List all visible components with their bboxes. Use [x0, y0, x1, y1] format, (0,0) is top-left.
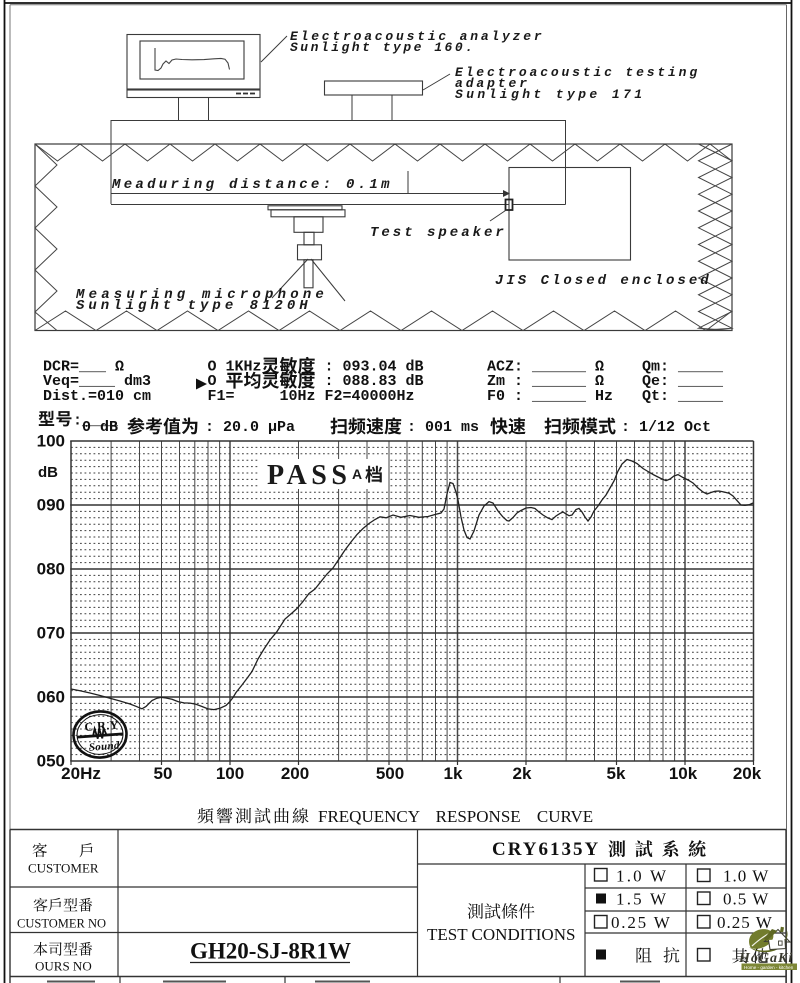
svg-text:FREQUENCY RESPONSE CURVE: FREQUENCY RESPONSE CURVE: [318, 807, 593, 826]
svg-text:CRY6135Y: CRY6135Y: [492, 839, 600, 860]
svg-text:200: 200: [281, 764, 309, 783]
svg-text:0 dB: 0 dB: [82, 419, 118, 436]
svg-text:10k: 10k: [669, 764, 698, 783]
svg-text:: 20.0 μPa: : 20.0 μPa: [205, 419, 295, 436]
svg-text:1.0 W: 1.0 W: [616, 867, 668, 886]
svg-text:Dist.=010 cm: Dist.=010 cm: [43, 388, 151, 405]
svg-text:Sunlight type 160.: Sunlight type 160.: [290, 40, 475, 55]
svg-text:20Hz: 20Hz: [61, 764, 101, 783]
svg-text:5k: 5k: [607, 764, 626, 783]
svg-text:CUSTOMER: CUSTOMER: [28, 861, 99, 876]
svg-text:0.5 W: 0.5 W: [723, 890, 769, 909]
svg-text:GH20-SJ-8R1W: GH20-SJ-8R1W: [190, 939, 351, 964]
svg-text:dB: dB: [38, 464, 58, 481]
svg-text:090: 090: [37, 496, 65, 515]
svg-text:1.5 W: 1.5 W: [616, 890, 668, 909]
svg-text:Meaduring distance: 0.1m: Meaduring distance: 0.1m: [111, 177, 393, 193]
svg-text:Sunlight type 171: Sunlight type 171: [455, 87, 645, 102]
svg-text:2k: 2k: [513, 764, 532, 783]
svg-text:CUSTOMER NO: CUSTOMER NO: [17, 917, 106, 931]
svg-text:: 001 ms: : 001 ms: [407, 419, 479, 436]
svg-text:C.R.Y: C.R.Y: [84, 718, 119, 734]
svg-text:TEST CONDITIONS: TEST CONDITIONS: [427, 925, 575, 944]
svg-text:A: A: [352, 466, 362, 482]
svg-text:Test speaker: Test speaker: [370, 225, 507, 241]
svg-text:0.25 W: 0.25 W: [611, 913, 672, 932]
svg-text:080: 080: [37, 560, 65, 579]
svg-text:50: 50: [154, 764, 173, 783]
svg-text:070: 070: [37, 624, 65, 643]
svg-text:F0 : ______ Hz: F0 : ______ Hz: [487, 388, 613, 405]
svg-text:100: 100: [37, 432, 65, 451]
svg-text:Home - garden - kitchen: Home - garden - kitchen: [744, 965, 794, 970]
svg-text:PASS: PASS: [267, 460, 351, 491]
svg-text:1.0 W: 1.0 W: [723, 867, 769, 886]
svg-text:0.25 W: 0.25 W: [717, 913, 773, 932]
svg-text:060: 060: [37, 688, 65, 707]
svg-text:F1= 10Hz F2=40000Hz: F1= 10Hz F2=40000Hz: [208, 388, 415, 405]
svg-text:OURS NO: OURS NO: [35, 959, 92, 974]
svg-text:Sound: Sound: [88, 740, 120, 754]
svg-text:JIS Closed enclosed: JIS Closed enclosed: [495, 273, 712, 289]
svg-text:20k: 20k: [733, 764, 762, 783]
svg-text:500: 500: [376, 764, 404, 783]
svg-text:Qt: _____: Qt: _____: [642, 388, 724, 405]
svg-text:: 1/12 Oct: : 1/12 Oct: [621, 419, 711, 436]
svg-text:Sunlight type 8120H: Sunlight type 8120H: [76, 298, 312, 314]
svg-text:1k: 1k: [444, 764, 463, 783]
svg-text:100: 100: [216, 764, 244, 783]
